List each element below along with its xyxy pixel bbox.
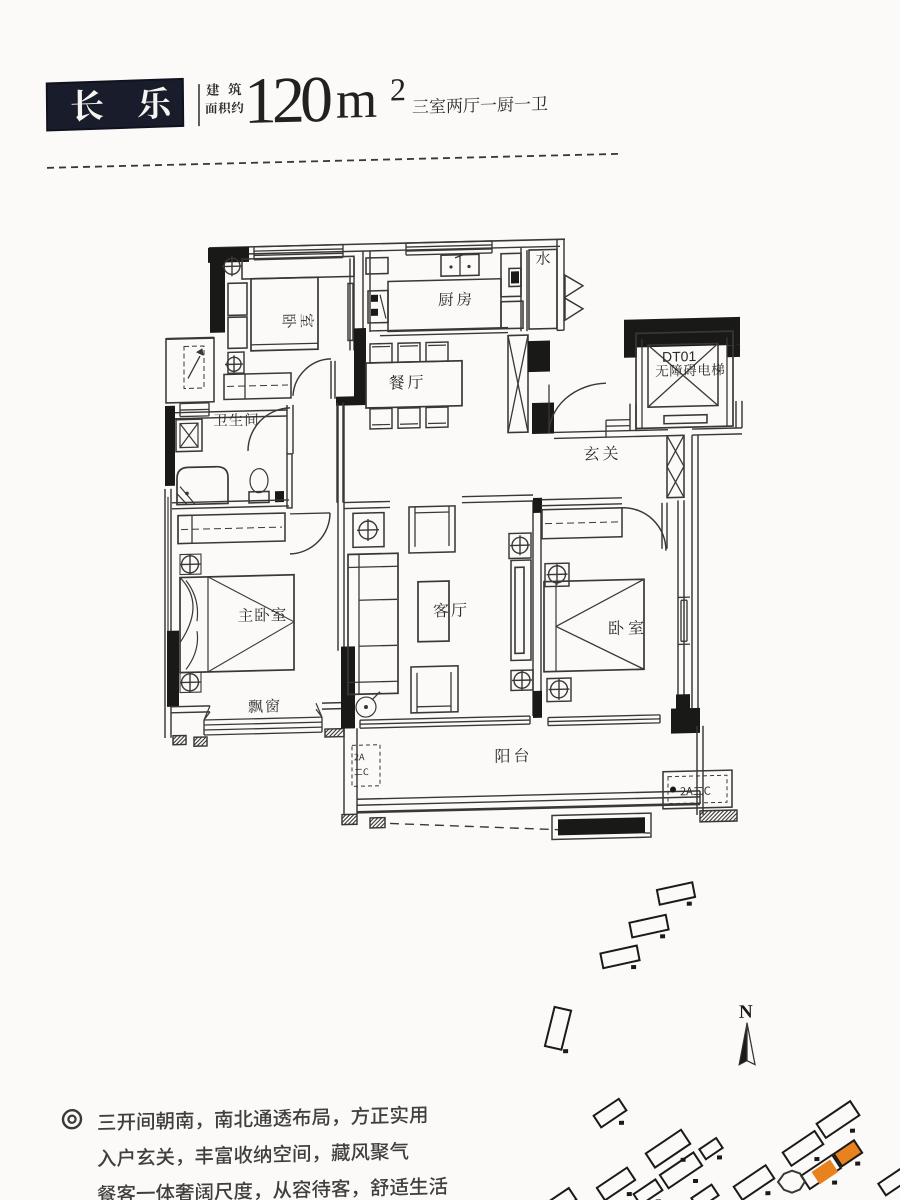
svg-text:N: N	[739, 1002, 753, 1023]
svg-text:2: 2	[390, 71, 406, 107]
svg-text:DT01: DT01	[662, 348, 696, 365]
svg-text:120: 120	[244, 63, 331, 138]
svg-text:m: m	[336, 71, 377, 130]
